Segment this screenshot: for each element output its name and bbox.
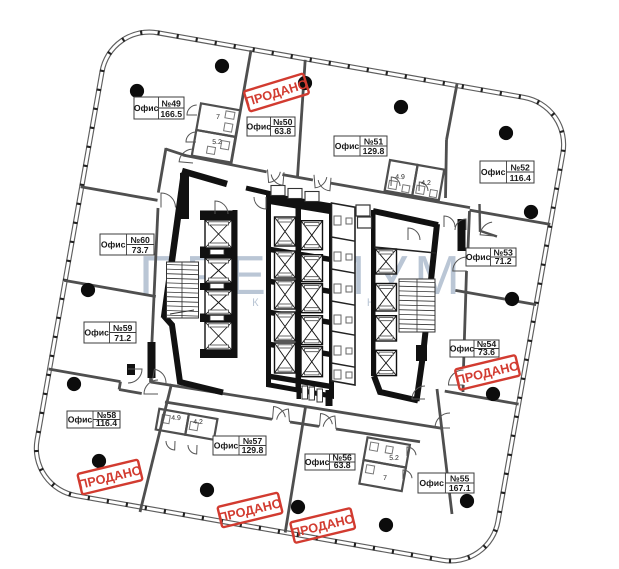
svg-text:Офис: Офис <box>335 141 360 151</box>
svg-text:166.5: 166.5 <box>160 109 182 119</box>
svg-text:167.1: 167.1 <box>449 483 471 493</box>
svg-text:129.8: 129.8 <box>242 445 264 455</box>
svg-text:4.9: 4.9 <box>171 415 181 422</box>
svg-text:63.8: 63.8 <box>334 460 351 470</box>
svg-text:7: 7 <box>383 475 387 482</box>
svg-text:Офис: Офис <box>134 103 159 113</box>
svg-text:5.2: 5.2 <box>389 455 399 462</box>
svg-text:Офис: Офис <box>84 328 109 338</box>
svg-text:Офис: Офис <box>466 252 491 262</box>
svg-text:5.2: 5.2 <box>212 139 222 146</box>
svg-text:4.9: 4.9 <box>395 174 405 181</box>
svg-text:73.7: 73.7 <box>132 245 149 255</box>
svg-text:116.4: 116.4 <box>510 173 531 183</box>
svg-text:7: 7 <box>216 114 220 121</box>
svg-text:Офис: Офис <box>101 240 126 250</box>
svg-text:№60: №60 <box>131 235 151 245</box>
svg-text:116.4: 116.4 <box>96 418 117 428</box>
svg-text:№49: №49 <box>162 98 182 108</box>
svg-text:Офис: Офис <box>450 344 475 354</box>
svg-text:73.6: 73.6 <box>478 347 495 357</box>
svg-text:129.8: 129.8 <box>363 146 385 156</box>
svg-text:Офис: Офис <box>247 122 272 132</box>
svg-text:71.2: 71.2 <box>495 256 512 266</box>
svg-text:№59: №59 <box>113 323 133 333</box>
svg-text:4.2: 4.2 <box>421 180 431 187</box>
svg-text:63.8: 63.8 <box>274 126 291 136</box>
svg-text:Офис: Офис <box>419 478 444 488</box>
svg-text:№52: №52 <box>511 162 531 172</box>
svg-text:Офис: Офис <box>305 457 330 467</box>
svg-text:Офис: Офис <box>68 415 93 425</box>
svg-text:Офис: Офис <box>214 441 239 451</box>
svg-text:Офис: Офис <box>481 167 506 177</box>
svg-text:71.2: 71.2 <box>114 333 131 343</box>
svg-text:4.2: 4.2 <box>193 419 203 426</box>
